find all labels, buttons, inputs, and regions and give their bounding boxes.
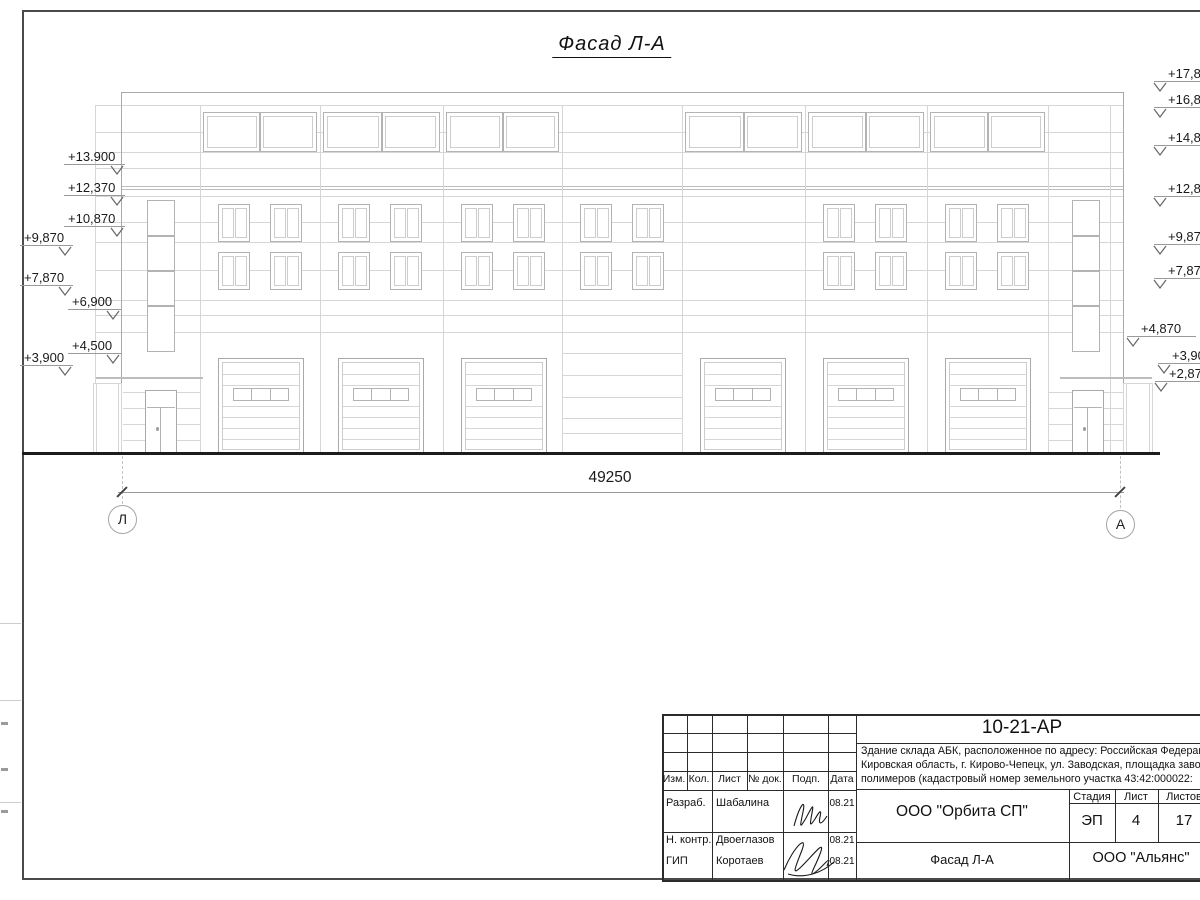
elevation-mark: +4,870: [1141, 321, 1181, 336]
project-description-line2: Кировская область, г. Кирово-Чепецк, ул.…: [861, 759, 1200, 771]
porch: [96, 383, 97, 452]
title-block-role: Н. контр.: [666, 834, 711, 846]
document-number: 10-21-АР: [982, 717, 1062, 739]
facade-line: [562, 397, 682, 398]
garage-door-slat: [950, 428, 1026, 429]
garage-door-slat: [223, 439, 299, 440]
stage-label: Стадия: [1073, 791, 1111, 803]
title-block-line: [856, 714, 857, 880]
facade-line: [320, 105, 321, 452]
window-pane: [517, 208, 529, 238]
window-pane: [355, 208, 367, 238]
elevation-tick-icon: [1152, 245, 1168, 255]
facade-line: [1048, 105, 1049, 452]
window-pane: [879, 256, 891, 286]
title-block-line: [1115, 789, 1116, 842]
facade-line: [270, 389, 271, 400]
garage-door-window: [476, 388, 532, 401]
garage-door-window: [960, 388, 1016, 401]
facade-line: [562, 375, 682, 376]
facade-line: [997, 389, 998, 400]
facade-line: [95, 300, 1123, 301]
garage-door-slat: [343, 428, 419, 429]
clerestory-pane: [327, 116, 379, 148]
garage-door-slat: [223, 417, 299, 418]
facade-line: [121, 189, 1123, 190]
porch: [121, 383, 122, 452]
elevation-tick-icon: [1152, 197, 1168, 207]
facade-line: [562, 418, 682, 419]
garage-door-slat: [950, 406, 1026, 407]
elevation-mark: +7,870: [24, 270, 64, 285]
sheet-number: 4: [1132, 812, 1140, 829]
elevation-mark: +12,870: [1168, 181, 1200, 196]
garage-door-window: [838, 388, 894, 401]
sheet-label: Лист: [1124, 791, 1148, 803]
elevation-mark: +9,870: [1168, 229, 1200, 244]
window-pane: [597, 256, 609, 286]
dimension-value: 49250: [588, 469, 631, 487]
facade-line: [1110, 105, 1111, 452]
elevation-mark: +10,870: [68, 211, 115, 226]
contractor-name: ООО "Альянс": [1093, 850, 1190, 866]
clerestory-pane: [506, 116, 556, 148]
project-description-line1: Здание склада АБК, расположенное по адре…: [861, 745, 1200, 757]
window-pane: [649, 256, 661, 286]
stair-window-pane: [147, 306, 175, 352]
title-block-role: ГИП: [666, 855, 688, 867]
clerestory-pane: [207, 116, 257, 148]
garage-door-slat: [466, 439, 542, 440]
garage-door-slat: [950, 417, 1026, 418]
window-pane: [274, 208, 286, 238]
porch: [93, 383, 121, 384]
clerestory-pane: [991, 116, 1042, 148]
garage-door-slat: [828, 385, 904, 386]
garage-door-slat: [828, 428, 904, 429]
stage-value: ЭП: [1081, 812, 1103, 829]
dimension-extension-line: [122, 456, 123, 504]
facade-line: [200, 105, 201, 452]
window-pane: [949, 256, 961, 286]
sheets-total: 17: [1176, 812, 1193, 829]
garage-door-slat: [343, 417, 419, 418]
title-block-name: Двоеглазов: [716, 834, 774, 846]
clerestory-pane: [812, 116, 863, 148]
facade-line: [562, 105, 563, 452]
stair-window-pane: [1072, 271, 1100, 306]
project-description-line3: полимеров (кадастровый номер земельного …: [861, 773, 1193, 785]
title-block-name: Коротаев: [716, 855, 764, 867]
window-pane: [827, 208, 839, 238]
facade-line: [443, 105, 444, 452]
porch: [1126, 383, 1127, 452]
garage-door-slat: [950, 439, 1026, 440]
title-block-header-cell: Изм.: [663, 773, 686, 785]
window-pane: [949, 208, 961, 238]
elevation-tick-icon: [1152, 279, 1168, 289]
stair-window-pane: [1072, 306, 1100, 352]
title-block-header-cell: Дата: [830, 773, 853, 785]
facade-line: [95, 152, 1123, 153]
window-pane: [465, 256, 477, 286]
elevation-mark: +14,870: [1168, 130, 1200, 145]
garage-door-slat: [705, 439, 781, 440]
garage-door-slat: [950, 385, 1026, 386]
garage-door-slat: [828, 439, 904, 440]
window-pane: [394, 208, 406, 238]
garage-door-slat: [466, 385, 542, 386]
entrance-canopy: [95, 377, 203, 379]
window-pane: [1014, 256, 1026, 286]
facade-line: [978, 389, 979, 400]
elevation-tick-icon: [109, 196, 125, 206]
garage-door-slat: [950, 374, 1026, 375]
elevation-mark: +12,370: [68, 180, 115, 195]
entrance-door: [1072, 390, 1104, 454]
title-block-header-cell: Кол.: [689, 773, 710, 785]
title-block-line: [856, 789, 1200, 790]
facade-line: [95, 242, 1123, 243]
elevation-mark: +16,870: [1168, 92, 1200, 107]
elevation-mark: +13.900: [68, 149, 115, 164]
window-pane: [1014, 208, 1026, 238]
garage-door-window: [353, 388, 409, 401]
elevation-tick-icon: [1152, 108, 1168, 118]
garage-door-slat: [705, 417, 781, 418]
garage-door-slat: [223, 428, 299, 429]
garage-door-slat: [466, 428, 542, 429]
facade-line: [562, 433, 682, 434]
window-pane: [287, 256, 299, 286]
elevation-mark: +3,900: [24, 350, 64, 365]
clerestory-pane: [385, 116, 437, 148]
elevation-tick-icon: [1152, 146, 1168, 156]
elevation-mark: +2,870: [1169, 366, 1200, 381]
elevation-mark: +3,900: [1172, 348, 1200, 363]
elevation-tick-icon: [1153, 382, 1169, 392]
window-pane: [530, 256, 542, 286]
stair-window-pane: [1072, 200, 1100, 236]
axis-bubble-left: Л: [108, 505, 137, 534]
window-pane: [649, 208, 661, 238]
garage-door-slat: [705, 374, 781, 375]
facade-line: [95, 315, 1123, 316]
window-pane: [840, 208, 852, 238]
facade-line: [562, 353, 682, 354]
dimension-line: [118, 492, 1124, 493]
door-handle-icon: [156, 427, 159, 431]
elevation-mark: +4,500: [72, 338, 112, 353]
porch: [118, 383, 119, 452]
entrance-door-mullion: [1087, 408, 1088, 452]
facade-line: [390, 389, 391, 400]
drawing-sheet: Фасад Л-А +13.900+12,370+10,870+9,870+7,…: [0, 0, 1200, 900]
facade-line: [682, 105, 683, 452]
garage-door-slat: [705, 385, 781, 386]
stair-window-pane: [147, 236, 175, 271]
facade-line: [805, 105, 806, 452]
facade-line: [259, 113, 261, 151]
facade-line: [743, 113, 745, 151]
sheets-label: Листов: [1166, 791, 1200, 803]
title-block-line: [1158, 789, 1159, 842]
ground-line: [22, 452, 1160, 455]
stair-window-pane: [147, 200, 175, 236]
window-pane: [222, 256, 234, 286]
porch: [1152, 383, 1153, 452]
elevation-tick-icon: [105, 310, 121, 320]
facade-line: [381, 113, 383, 151]
title-block-line: [783, 714, 784, 880]
title-block-line: [662, 733, 856, 734]
window-pane: [530, 208, 542, 238]
entrance-door-transom: [1074, 407, 1102, 408]
facade-line: [927, 105, 928, 452]
window-pane: [478, 256, 490, 286]
facade-line: [502, 113, 504, 151]
garage-door-slat: [828, 417, 904, 418]
garage-door-slat: [828, 374, 904, 375]
stair-window-pane: [147, 271, 175, 306]
facade-line: [513, 389, 514, 400]
garage-door-window: [233, 388, 289, 401]
title-block-header-cell: Лист: [718, 773, 741, 785]
company-name: ООО "Орбита СП": [896, 803, 1028, 821]
elevation-tick-icon: [57, 286, 73, 296]
garage-door-slat: [466, 406, 542, 407]
facade-line: [371, 389, 372, 400]
garage-door-slat: [223, 406, 299, 407]
window-pane: [1001, 208, 1013, 238]
garage-door-slat: [466, 374, 542, 375]
elevation-tick-icon: [1125, 337, 1141, 347]
window-pane: [465, 208, 477, 238]
facade-line: [95, 105, 1123, 106]
elevation-tick-icon: [109, 227, 125, 237]
dimension-extension-line: [1120, 456, 1121, 508]
elevation-mark: +7,870: [1168, 263, 1200, 278]
window-pane: [355, 256, 367, 286]
garage-door-slat: [828, 406, 904, 407]
title-block-line: [712, 714, 713, 880]
window-pane: [892, 208, 904, 238]
window-pane: [517, 256, 529, 286]
porch: [1123, 383, 1152, 384]
porch: [93, 383, 94, 452]
garage-door-slat: [343, 406, 419, 407]
facade-line: [95, 168, 1123, 169]
facade-line: [95, 196, 1123, 197]
title-block-line: [662, 832, 856, 833]
window-pane: [235, 256, 247, 286]
porch: [1123, 383, 1124, 452]
facade-line: [733, 389, 734, 400]
title-block-name: Шабалина: [716, 797, 769, 809]
entrance-canopy: [1060, 377, 1152, 379]
window-pane: [840, 256, 852, 286]
facade-line: [875, 389, 876, 400]
elevation-tick-icon: [105, 354, 121, 364]
window-pane: [584, 256, 596, 286]
facade-line: [856, 389, 857, 400]
elevation-mark: +6,900: [72, 294, 112, 309]
sheet-drawing-title: Фасад Л-А: [930, 852, 994, 867]
window-pane: [407, 208, 419, 238]
window-pane: [962, 256, 974, 286]
clerestory-pane: [689, 116, 741, 148]
facade-line: [121, 186, 1123, 187]
facade-line: [95, 332, 1123, 333]
window-pane: [274, 256, 286, 286]
title-block-line: [662, 790, 856, 791]
entrance-door: [145, 390, 177, 454]
title-block-line: [856, 842, 1200, 843]
title-block-line: [662, 752, 856, 753]
garage-door-slat: [343, 385, 419, 386]
window-pane: [1001, 256, 1013, 286]
window-pane: [342, 208, 354, 238]
title-block-date: 08.21: [829, 798, 854, 809]
garage-door-slat: [223, 385, 299, 386]
facade-line: [865, 113, 867, 151]
garage-door-window: [715, 388, 771, 401]
elevation-tick-icon: [109, 165, 125, 175]
clerestory-pane: [263, 116, 313, 148]
elevation-mark: +9,870: [24, 230, 64, 245]
clerestory-pane: [869, 116, 920, 148]
elevation-tick-icon: [1152, 82, 1168, 92]
axis-bubble-right: А: [1106, 510, 1135, 539]
window-pane: [597, 208, 609, 238]
entrance-door-mullion: [160, 408, 161, 452]
facade-line: [987, 113, 989, 151]
window-pane: [962, 208, 974, 238]
garage-door-slat: [343, 439, 419, 440]
window-pane: [636, 208, 648, 238]
window-pane: [222, 208, 234, 238]
window-pane: [584, 208, 596, 238]
door-handle-icon: [1083, 427, 1086, 431]
elevation-tick-icon: [57, 246, 73, 256]
window-pane: [636, 256, 648, 286]
garage-door-slat: [343, 374, 419, 375]
clerestory-pane: [934, 116, 985, 148]
porch: [1149, 383, 1150, 452]
facade-line: [752, 389, 753, 400]
window-pane: [342, 256, 354, 286]
window-pane: [407, 256, 419, 286]
window-pane: [394, 256, 406, 286]
title-block-line: [1069, 803, 1200, 804]
window-pane: [478, 208, 490, 238]
garage-door-slat: [705, 428, 781, 429]
window-pane: [287, 208, 299, 238]
facade-line: [251, 389, 252, 400]
garage-door-slat: [223, 374, 299, 375]
title-block-line: [662, 771, 856, 772]
window-pane: [892, 256, 904, 286]
title-block-role: Разраб.: [666, 797, 706, 809]
window-pane: [235, 208, 247, 238]
garage-door-slat: [466, 417, 542, 418]
facade-line: [494, 389, 495, 400]
entrance-door-transom: [147, 407, 175, 408]
window-pane: [827, 256, 839, 286]
title-block-line: [856, 743, 1200, 744]
garage-door-slat: [705, 406, 781, 407]
stair-window-pane: [1072, 236, 1100, 271]
title-block-header-cell: № док.: [748, 773, 782, 785]
clerestory-pane: [747, 116, 799, 148]
clerestory-pane: [450, 116, 500, 148]
title-block-header-cell: Подп.: [792, 773, 820, 785]
elevation-mark: +17,870: [1168, 66, 1200, 81]
title-block-date: 08.21: [829, 856, 854, 867]
window-pane: [879, 208, 891, 238]
title-block-date: 08.21: [829, 835, 854, 846]
elevation-tick-icon: [57, 366, 73, 376]
facade-line: [121, 92, 1123, 93]
